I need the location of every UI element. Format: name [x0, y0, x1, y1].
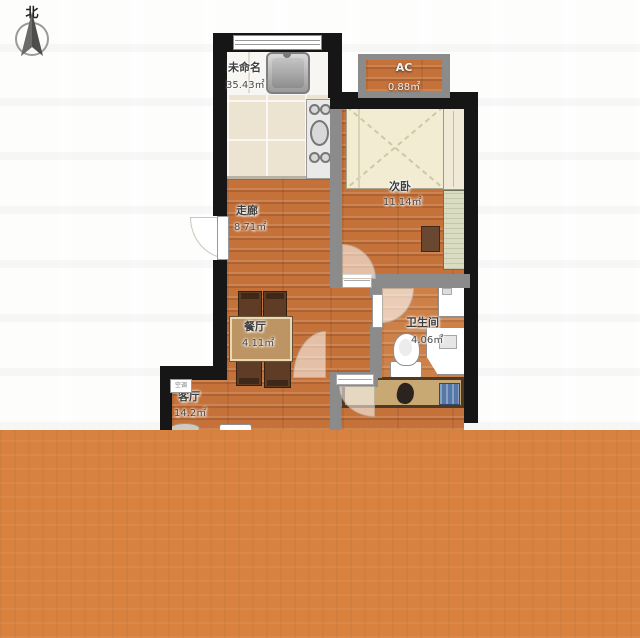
wall-kitchen-bedroom: [330, 96, 342, 280]
wardrobe-bottom: [443, 190, 466, 270]
ac-area: 0.88㎡: [366, 78, 442, 93]
pillow-seam: [358, 107, 360, 188]
wall-kitchen-right: [328, 33, 342, 98]
wall-left-lower: [213, 260, 227, 373]
corridor-area: 8.71㎡: [234, 218, 266, 233]
compass: 北: [6, 2, 58, 60]
wall-living-left: [160, 366, 172, 430]
orange-overlay: [0, 430, 640, 638]
ac-label: AC: [366, 61, 442, 74]
kitchen-label: 未命名: [228, 59, 261, 75]
bathroom-area: 4.06㎡: [411, 331, 443, 346]
dining-chair: [263, 291, 287, 318]
washer-panel: [442, 288, 452, 295]
kitchen-sink: [266, 52, 310, 94]
compass-arrow-icon: [12, 10, 52, 60]
wall-right: [464, 106, 478, 423]
hanging-clothes-icon: [395, 381, 417, 405]
folded-shirt-icon: [439, 383, 460, 405]
entrance-door-leaf: [217, 216, 229, 260]
kitchen-area: 35.43㎡: [226, 76, 265, 91]
dining-label: 餐厅: [244, 318, 266, 334]
dining-area: 4.11㎡: [242, 334, 274, 349]
washing-machine: [438, 284, 467, 317]
living-area: 14.2㎡: [174, 404, 206, 419]
dining-chair: [238, 291, 262, 318]
sink-basin: [272, 58, 304, 88]
burner-icon: [309, 152, 320, 163]
bed-cover-crease-icon: [347, 107, 443, 188]
bedroom-area: 11.14㎡: [383, 193, 422, 208]
bed: [346, 106, 444, 189]
stove-cooktop: [306, 99, 332, 179]
nightstand: [421, 226, 440, 252]
ac-unit-tag: 空调: [170, 379, 192, 393]
kitchen-window: [233, 35, 322, 50]
burner-icon: [309, 104, 320, 115]
bathroom-label: 卫生间: [406, 314, 439, 330]
bedroom-label: 次卧: [389, 178, 411, 194]
wall-bathroom-west-lower: [370, 326, 382, 378]
corridor-label: 走廊: [236, 202, 258, 218]
burner-large-icon: [310, 120, 329, 146]
wall-left-upper: [213, 33, 227, 216]
living-door-threshold: [336, 374, 374, 385]
wardrobe-top: [443, 108, 466, 190]
wardrobe-door-line: [453, 111, 454, 187]
